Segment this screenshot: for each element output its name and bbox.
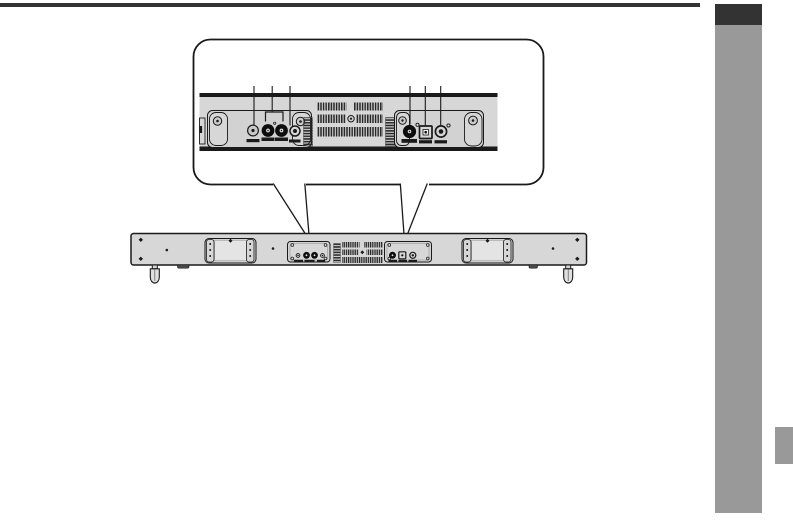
port-label-bar <box>419 140 432 143</box>
port-label-bar <box>289 140 301 143</box>
connector-panel-left <box>288 242 331 263</box>
heat-fin-icon <box>304 118 313 147</box>
wall-mount-recess-left <box>205 239 256 264</box>
manual-page <box>0 0 793 528</box>
wall-mount-recess-right <box>462 239 513 264</box>
callout-left-recess <box>208 111 312 148</box>
port-label-bars <box>389 260 418 262</box>
foot-left <box>150 265 159 283</box>
port-label-bar <box>402 139 418 143</box>
port-label-bar <box>247 139 260 142</box>
foot-right <box>564 265 573 283</box>
callout-right-recess <box>395 111 484 148</box>
bottom-tab <box>529 265 538 268</box>
connector-panel-right <box>385 242 432 263</box>
magnifier-leader-lines <box>273 184 427 239</box>
port-label-bar <box>435 140 448 143</box>
clipped-left-bracket <box>200 118 206 144</box>
bottom-tab <box>178 265 190 268</box>
heat-fin-icon <box>334 244 341 263</box>
magnified-rear-panel <box>200 86 498 151</box>
rear-panel-diagram <box>0 0 793 528</box>
soundbar-rear-view <box>131 234 587 284</box>
port-label-bars <box>294 260 325 262</box>
heat-fin-icon <box>386 118 395 147</box>
